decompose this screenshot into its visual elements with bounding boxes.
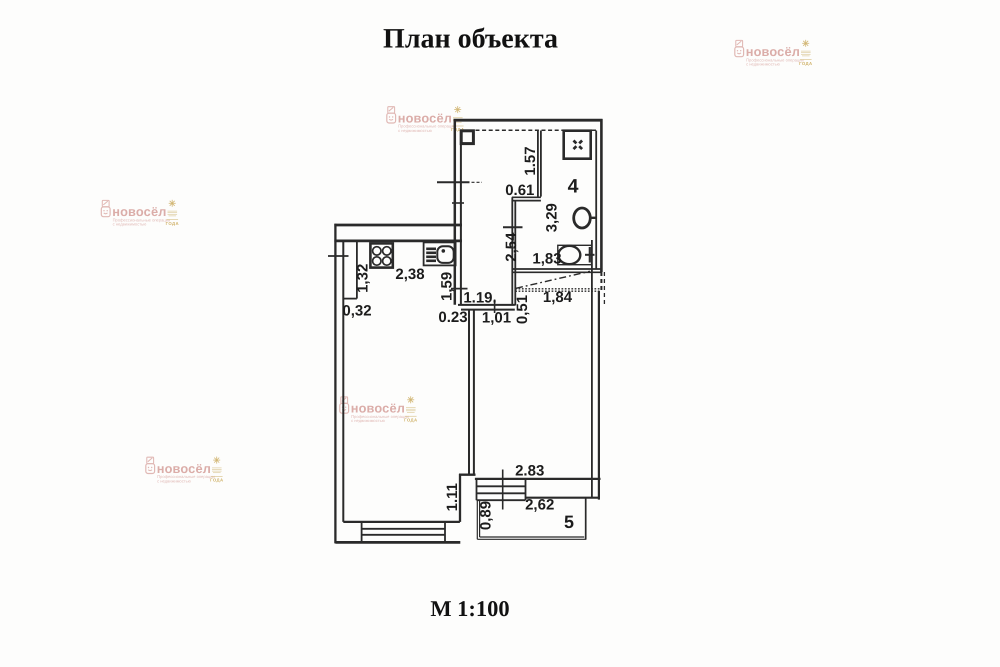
svg-text:4: 4 (568, 176, 579, 198)
svg-text:2.83: 2.83 (515, 462, 544, 479)
svg-text:1.57: 1.57 (522, 146, 539, 175)
svg-text:0,32: 0,32 (342, 303, 371, 320)
svg-text:План объекта: План объекта (383, 24, 558, 55)
svg-text:1,32: 1,32 (354, 264, 371, 293)
svg-text:0.23: 0.23 (438, 309, 467, 326)
svg-text:1.19.: 1.19. (463, 290, 496, 307)
svg-text:1,83: 1,83 (532, 251, 561, 268)
svg-text:0,51: 0,51 (514, 295, 531, 324)
svg-text:5: 5 (564, 512, 574, 532)
svg-text:2,38: 2,38 (395, 266, 424, 283)
svg-text:0,89: 0,89 (478, 501, 495, 530)
svg-text:1,01: 1,01 (482, 310, 511, 327)
svg-text:2,54: 2,54 (503, 232, 520, 262)
svg-text:1,59: 1,59 (439, 272, 456, 301)
svg-text:0.61: 0.61 (505, 182, 534, 199)
svg-text:1,84: 1,84 (543, 289, 573, 306)
svg-text:1.11: 1.11 (444, 483, 461, 511)
svg-text:3,29: 3,29 (544, 203, 561, 232)
svg-text:2,62: 2,62 (525, 497, 554, 514)
svg-text:М 1:100: М 1:100 (430, 596, 509, 621)
